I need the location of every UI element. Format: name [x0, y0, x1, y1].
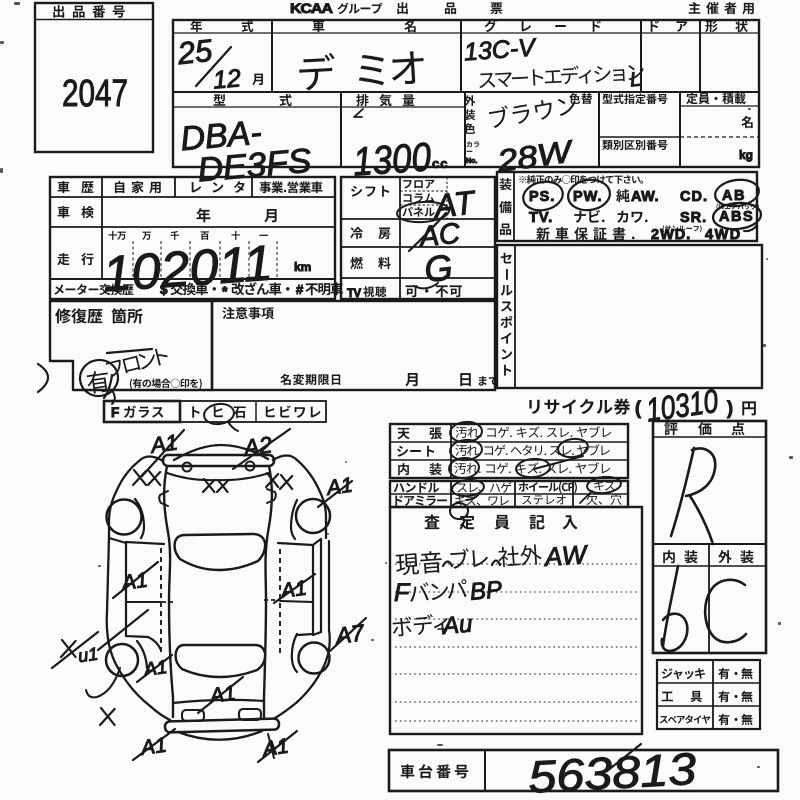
svg-text:$: $ — [160, 282, 168, 297]
svg-text:A1: A1 — [324, 474, 355, 501]
svg-text:AB: AB — [722, 188, 746, 204]
svg-text:PS.: PS. — [529, 189, 555, 205]
svg-text:AW: AW — [542, 539, 590, 572]
svg-text:L: L — [629, 68, 642, 91]
svg-text:No.: No. — [466, 158, 477, 165]
svg-text:12: 12 — [212, 64, 242, 94]
svg-text:cc: cc — [432, 156, 448, 171]
svg-text:#: # — [296, 282, 304, 297]
svg-text:2047: 2047 — [62, 73, 128, 115]
svg-text:PW.: PW. — [573, 189, 603, 205]
svg-text:A2: A2 — [240, 431, 274, 461]
svg-text:F: F — [394, 579, 411, 607]
svg-text:13C-V: 13C-V — [463, 33, 538, 66]
svg-text:SR.: SR. — [680, 210, 707, 226]
svg-text:kg: kg — [739, 148, 753, 162]
svg-text:TV: TV — [347, 288, 362, 300]
svg-text:25: 25 — [175, 33, 215, 72]
svg-text:(: ( — [635, 398, 641, 418]
svg-text:563813: 563813 — [527, 743, 697, 800]
svg-text:AW.: AW. — [631, 189, 659, 205]
svg-text:km: km — [294, 260, 311, 274]
svg-text:*: * — [222, 283, 228, 299]
svg-text:ABS: ABS — [719, 209, 754, 225]
svg-text:2WD.: 2WD. — [651, 227, 691, 243]
svg-text:TV.: TV. — [529, 210, 553, 226]
svg-text:): ) — [727, 398, 733, 418]
svg-text:CD.: CD. — [680, 189, 708, 205]
svg-text:F: F — [111, 405, 119, 420]
svg-text:KCAA: KCAA — [290, 1, 333, 16]
svg-text:Au: Au — [440, 611, 474, 641]
svg-text:BP: BP — [469, 576, 503, 606]
